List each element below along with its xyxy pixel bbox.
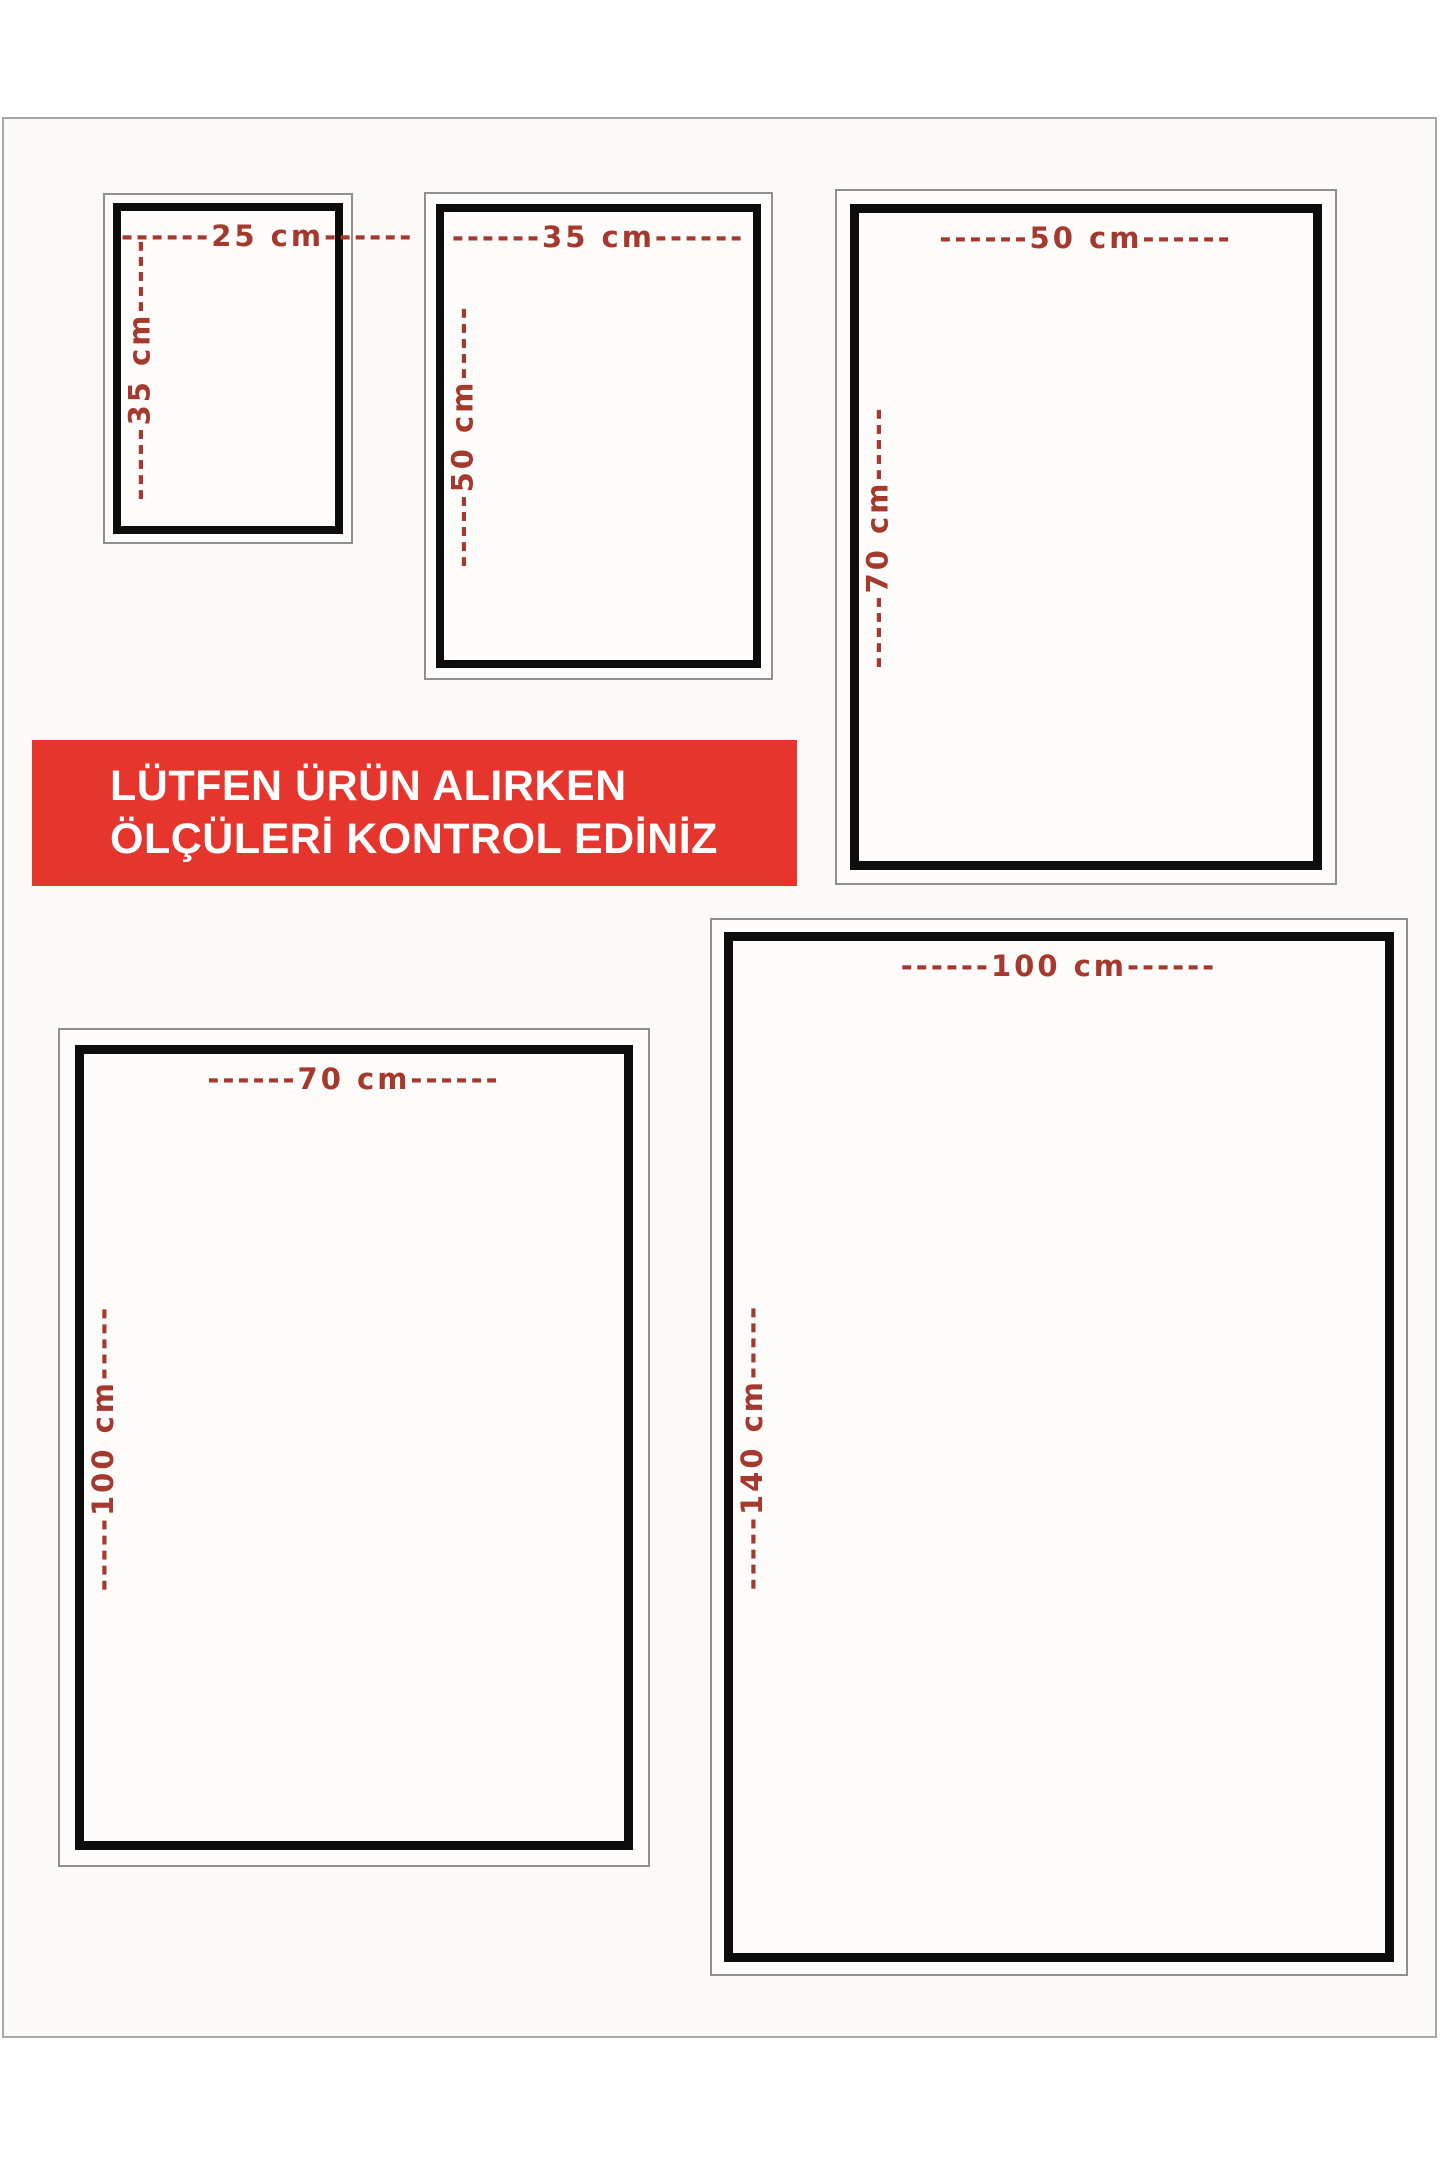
- height-dimension-label: -----140 cm-----: [735, 1304, 769, 1590]
- warning-banner: LÜTFEN ÜRÜN ALIRKEN ÖLÇÜLERİ KONTROL EDİ…: [32, 740, 797, 886]
- size-box-50x70-frame: ------50 cm------ -----70 cm-----: [850, 204, 1322, 870]
- height-dimension-label: -----70 cm-----: [861, 405, 895, 668]
- size-box-25x35: ------25 cm------ -----35 cm-----: [103, 193, 353, 544]
- size-box-100x140: ------100 cm------ -----140 cm-----: [710, 918, 1408, 1976]
- width-dimension-label: ------50 cm------: [859, 221, 1313, 255]
- height-dimension-label-column: -----70 cm-----: [859, 213, 897, 861]
- size-box-35x50-frame: ------35 cm------ -----50 cm-----: [436, 204, 761, 668]
- size-box-50x70: ------50 cm------ -----70 cm-----: [835, 189, 1337, 885]
- size-box-100x140-frame: ------100 cm------ -----140 cm-----: [724, 932, 1394, 1962]
- height-dimension-label: -----50 cm-----: [446, 304, 480, 567]
- warning-banner-line2: ÖLÇÜLERİ KONTROL EDİNİZ: [110, 816, 797, 863]
- width-dimension-label: ------100 cm------: [733, 949, 1385, 983]
- warning-banner-line1: LÜTFEN ÜRÜN ALIRKEN: [110, 763, 797, 810]
- width-dimension-label: ------35 cm------: [444, 220, 753, 254]
- size-box-25x35-frame: ------25 cm------ -----35 cm-----: [113, 203, 343, 534]
- size-box-35x50: ------35 cm------ -----50 cm-----: [424, 192, 773, 680]
- height-dimension-label-column: -----50 cm-----: [444, 212, 482, 660]
- height-dimension-label: -----35 cm-----: [123, 237, 157, 500]
- height-dimension-label-column: -----100 cm-----: [84, 1054, 122, 1841]
- width-dimension-label: ------70 cm------: [84, 1062, 624, 1096]
- size-box-70x100-frame: ------70 cm------ -----100 cm-----: [75, 1045, 633, 1850]
- height-dimension-label-column: -----35 cm-----: [121, 211, 159, 526]
- size-chart-canvas: ------25 cm------ -----35 cm----- ------…: [0, 0, 1440, 2160]
- height-dimension-label: -----100 cm-----: [86, 1304, 120, 1590]
- height-dimension-label-column: -----140 cm-----: [733, 941, 771, 1953]
- size-box-70x100: ------70 cm------ -----100 cm-----: [58, 1028, 650, 1867]
